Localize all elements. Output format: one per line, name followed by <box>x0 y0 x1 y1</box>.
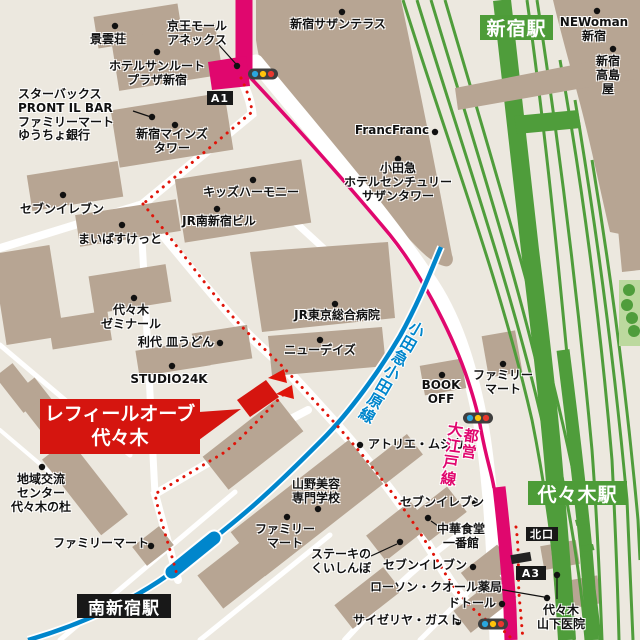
poi-label-toshiro-saraudon: 利代 皿うどん <box>138 336 214 350</box>
poi-label-chiiki-koryu: 地域交流 センター 代々木の杜 <box>11 473 71 514</box>
labels-layer: レフィールオーブ 代々木 景雲荘京王モール アネックスホテルサンルート プラザ新… <box>0 0 640 640</box>
poi-label-jr-tokyo-hospital: JR東京総合病院 <box>294 309 380 323</box>
poi-label-yoyogi-seminar: 代々木 ゼミナール <box>101 304 161 332</box>
badge-north-exit: 北口 <box>526 527 558 541</box>
badge-minami-shinjuku-station: 南新宿駅 <box>77 594 171 618</box>
poi-label-kids-harmony: キッズハーモニー <box>203 186 299 200</box>
poi-label-saizeriya-gusto: サイゼリヤ・ガスト <box>353 614 461 628</box>
poi-label-familymart-south: ファミリー マート <box>255 523 315 551</box>
poi-label-keiunso: 景雲荘 <box>90 33 126 47</box>
poi-label-hotel-sunroute: ホテルサンルート プラザ新宿 <box>109 60 205 88</box>
poi-label-mynds-tower: 新宿マインズ タワー <box>136 128 208 156</box>
destination-name-line1: レフィールオーブ <box>45 403 195 427</box>
poi-label-odakyu-hotel: 小田急 ホテルセンチュリー サザンタワー <box>344 162 452 203</box>
poi-label-bookoff: BOOK OFF <box>422 379 461 407</box>
poi-label-maibasuketto: まいばすけっと <box>78 233 162 247</box>
poi-label-studio24k: STUDIO24K <box>130 373 207 387</box>
badge-yoyogi-station: 代々木駅 <box>528 481 627 505</box>
rail-label-odakyu-odawara-line: 小田急小田原線 <box>353 316 430 427</box>
badge-exit-a1: A1 <box>207 91 233 105</box>
badge-exit-a3: A3 <box>516 566 546 580</box>
poi-label-yoyogi-yamashita: 代々木 山下医院 <box>537 604 585 632</box>
map: レフィールオーブ 代々木 景雲荘京王モール アネックスホテルサンルート プラザ新… <box>0 0 640 640</box>
poi-label-takashimaya: 新宿 高島屋 <box>592 55 624 96</box>
destination-callout: レフィールオーブ 代々木 <box>40 399 200 454</box>
destination-name-line2: 代々木 <box>91 427 148 451</box>
badge-shinjuku-station: 新宿駅 <box>480 15 553 40</box>
poi-label-seven-south: セブンイレブン <box>383 559 467 573</box>
poi-label-lawson-qol: ローソン・クオール薬局 <box>370 581 502 595</box>
rail-label-oedo-line: 大江戸線 <box>436 420 467 488</box>
poi-label-chuka-ichibankan: 中華食堂 一番館 <box>437 523 485 551</box>
poi-label-newdays: ニューデイズ <box>284 344 356 358</box>
poi-label-seven-mid: セブンイレブン <box>400 496 484 510</box>
poi-label-southern-terrace: 新宿サザンテラス <box>290 18 386 32</box>
poi-label-yamano-beauty: 山野美容 専門学校 <box>292 478 340 506</box>
poi-label-starbucks-group: スターバックス PRONT IL BAR ファミリーマート ゆうちょ銀行 <box>18 88 114 143</box>
poi-label-francfranc: FrancFranc <box>355 124 429 138</box>
poi-label-familymart-east: ファミリー マート <box>473 369 533 397</box>
poi-label-seven-nw: セブンイレブン <box>20 203 104 217</box>
poi-label-jr-minamishinjuku: JR南新宿ビル <box>182 215 256 229</box>
poi-label-steak-kuishinbo: ステーキの くいしんぼ <box>311 548 371 576</box>
poi-label-newoman: NEWoman 新宿 <box>560 16 628 44</box>
poi-label-keio-mall-annex: 京王モール アネックス <box>167 20 227 48</box>
poi-label-doutor: ドトール <box>448 597 496 611</box>
poi-label-familymart-sw: ファミリーマート <box>53 537 149 551</box>
